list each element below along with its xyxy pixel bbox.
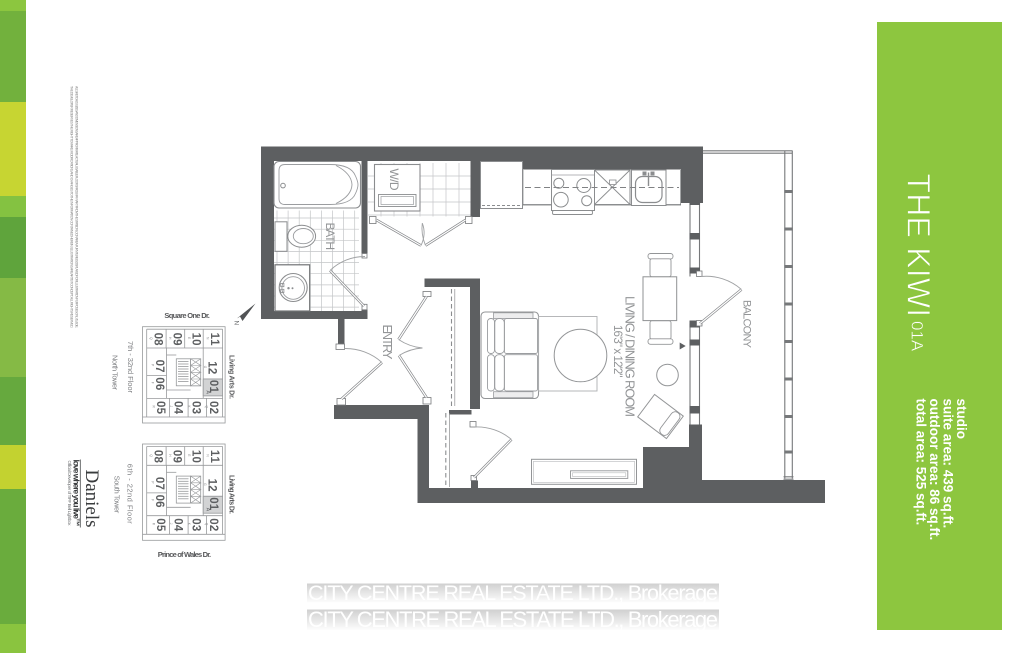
svg-text:BATH: BATH <box>323 223 337 251</box>
svg-text:W/D: W/D <box>387 169 401 191</box>
svg-text:CITY CENTRE REAL ESTATE LTD.,: CITY CENTRE REAL ESTATE LTD., Brokerage <box>308 581 718 605</box>
svg-text:6th - 22nd Floor: 6th - 22nd Floor <box>126 464 135 525</box>
svg-text:North Tower: North Tower <box>111 355 120 391</box>
svg-text:Daniels: Daniels <box>81 470 102 528</box>
svg-text:Square One Dr.: Square One Dr. <box>164 311 210 320</box>
svg-text:CITY CENTRE REAL ESTATE LTD.,: CITY CENTRE REAL ESTATE LTD., Brokerage <box>308 607 718 632</box>
svg-text:ALL SKETCHES SIZES AND DIMENSI: ALL SKETCHES SIZES AND DIMENSIONS ARE AP… <box>75 86 79 328</box>
svg-text:THE KIWI: THE KIWI <box>901 174 937 318</box>
svg-text:total area: 525 sq.ft.: total area: 525 sq.ft. <box>914 399 929 526</box>
svg-text:Living Arts Dr.: Living Arts Dr. <box>228 475 235 514</box>
svg-text:South Tower: South Tower <box>113 476 122 514</box>
svg-text:04: 04 <box>172 518 184 532</box>
svg-text:E: E <box>187 454 191 456</box>
svg-text:LIVING / DINING ROOM: LIVING / DINING ROOM <box>623 296 638 417</box>
svg-text:Official Developer of TIFF Bel: Official Developer of TIFF Bell Lightbox <box>66 461 72 527</box>
svg-text:7th - 32nd Floor: 7th - 32nd Floor <box>126 341 135 394</box>
svg-text:04: 04 <box>172 401 184 415</box>
svg-text:F: F <box>151 499 155 501</box>
svg-text:Prince of Wales Dr.: Prince of Wales Dr. <box>158 550 211 559</box>
svg-text:P: P <box>151 481 155 483</box>
svg-text:BALCONY: BALCONY <box>741 300 753 349</box>
svg-text:01A: 01A <box>908 321 927 352</box>
svg-text:E: E <box>187 337 191 339</box>
svg-text:F: F <box>151 382 155 384</box>
svg-text:ENTRY: ENTRY <box>380 325 394 361</box>
svg-text:P: P <box>151 364 155 366</box>
svg-text:THE DEVELOPER RESERVES THE RIG: THE DEVELOPER RESERVES THE RIGHT TO MAKE… <box>70 86 74 328</box>
svg-text:love where you live™: love where you live™ <box>72 460 82 527</box>
svg-text:N: N <box>233 321 240 326</box>
svg-text:16'3" x 12'2": 16'3" x 12'2" <box>611 325 623 378</box>
svg-text:Living Arts Dr.: Living Arts Dr. <box>228 355 235 399</box>
